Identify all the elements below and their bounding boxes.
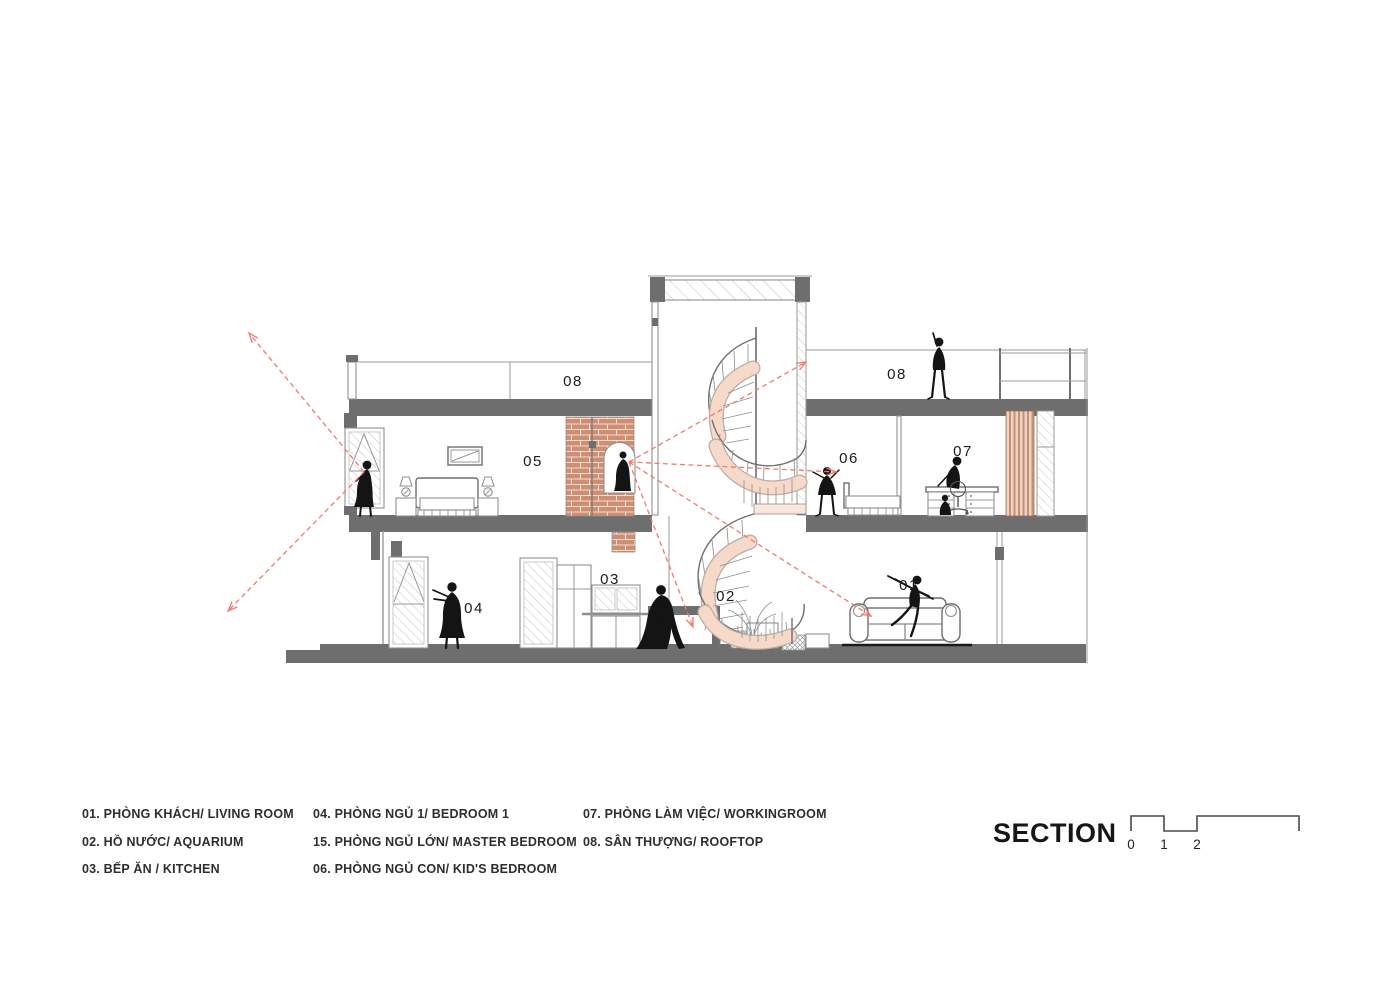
scale-bar: 0 1 2 <box>1127 816 1299 852</box>
room-label-01: 01 <box>899 577 919 594</box>
scale-tick-0: 0 <box>1127 837 1135 852</box>
room-label-07: 07 <box>953 443 973 460</box>
wall-ground-right <box>995 532 1004 644</box>
figure-kid-under-desk <box>942 495 948 501</box>
room-label-06: 06 <box>839 450 859 467</box>
room-label-08-left: 08 <box>563 373 583 390</box>
bed-room05 <box>396 447 498 516</box>
figure-woman-04 <box>433 582 465 648</box>
nightstand-left <box>396 498 416 516</box>
legend-item-bedroom1: 04. PHÒNG NGỦ 1/ BEDROOM 1 <box>313 801 613 829</box>
spiral-staircase <box>698 327 806 646</box>
room-label-08-right: 08 <box>887 366 907 383</box>
section-drawing-sheet: 08 08 05 06 07 04 03 02 01 0 1 2 SECTION… <box>0 0 1390 983</box>
legend-item-workingroom: 07. PHÒNG LÀM VIỆC/ WORKINGROOM <box>583 801 883 829</box>
window-room07 <box>1037 411 1054 516</box>
scale-tick-1: 1 <box>1160 837 1168 852</box>
kitchen-cabinets <box>520 558 650 648</box>
door-room04 <box>371 531 428 648</box>
second-floor-slab <box>349 515 1088 532</box>
scale-tick-2: 2 <box>1193 837 1201 852</box>
figure-kid-06 <box>813 467 839 516</box>
louver-screen <box>1006 411 1034 516</box>
room-label-04: 04 <box>464 600 484 617</box>
legend-item-kids-bedroom: 06. PHÒNG NGỦ CON/ KID'S BEDROOM <box>313 856 613 884</box>
legend-item-master-bedroom: 15. PHÒNG NGỦ LỚN/ MASTER BEDROOM <box>313 829 613 857</box>
rooftop-railing <box>806 348 1087 399</box>
left-parapet <box>346 355 652 399</box>
lamp-left <box>400 477 412 486</box>
section-title: SECTION <box>993 818 1117 849</box>
legend-item-rooftop: 08. SÂN THƯỢNG/ ROOFTOP <box>583 829 883 857</box>
bed-room06 <box>844 483 900 515</box>
sofa-room01 <box>842 598 972 645</box>
figure-person-rooftop-08 <box>928 333 949 399</box>
tower-roof-end-left <box>650 277 665 302</box>
figure-woman-walking-03 <box>636 585 685 649</box>
room-label-02: 02 <box>716 588 736 605</box>
desk-room07 <box>926 487 998 516</box>
tower-roof-end-right <box>795 277 810 302</box>
tower-glass-wall-left <box>652 302 658 515</box>
room-label-03: 03 <box>600 571 620 588</box>
legend-column-3: 07. PHÒNG LÀM VIỆC/ WORKINGROOM 08. SÂN … <box>583 801 883 856</box>
nightstand-right <box>478 498 498 516</box>
legend-column-2: 04. PHÒNG NGỦ 1/ BEDROOM 1 15. PHÒNG NGỦ… <box>313 801 613 884</box>
lamp-right <box>482 477 494 486</box>
room-label-05: 05 <box>523 453 543 470</box>
stair-landing <box>754 504 806 514</box>
